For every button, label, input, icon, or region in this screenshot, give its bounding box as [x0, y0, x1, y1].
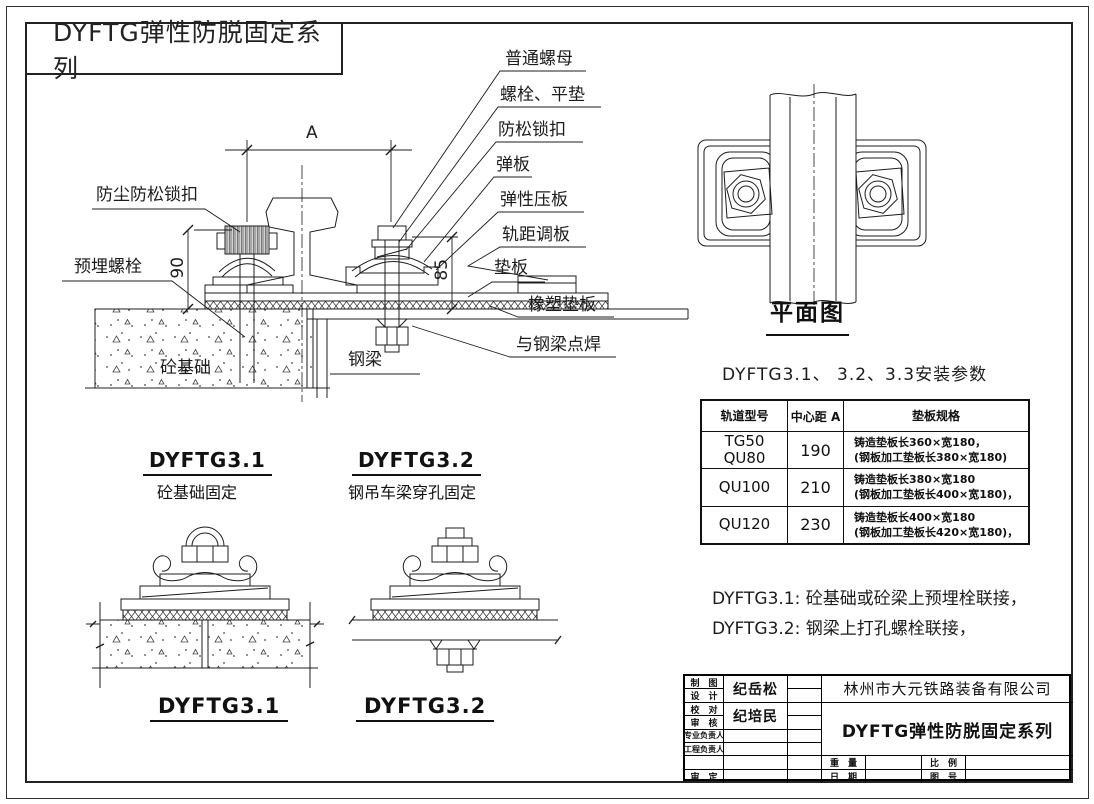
variant-left-footer: DYFTG3.1 [150, 694, 288, 722]
drawing-sheet: DYFTG弹性防脱固定系列 普通螺母 螺栓、平垫 防松锁扣 弹板 弹性压板 轨距… [0, 0, 1094, 804]
tb-date-value [866, 770, 922, 783]
variant-right-title: DYFTG3.2 [352, 448, 481, 476]
label-embed-bolt: 预埋螺栓 [74, 258, 142, 278]
label-dust-lock: 防尘防松锁扣 [96, 186, 198, 206]
plan-view-linework [698, 84, 926, 318]
rail-model: QU100 [719, 479, 770, 496]
tb-drawing-title: DYFTG弹性防脱固定系列 [822, 703, 1073, 757]
label-steel-beam: 钢梁 [348, 351, 382, 371]
tb-sign-cell [788, 703, 822, 716]
note-dyftg31: DYFTG3.1: 砼基础或砼梁上预埋栓联接， [712, 584, 1027, 609]
variant-right-linework [349, 528, 561, 672]
center-distance: 190 [787, 432, 843, 468]
callout-gauge-plate: 轨距调板 [502, 226, 570, 246]
dim-label-A: A [306, 124, 318, 144]
rail-model: QU120 [719, 516, 770, 533]
table-row: QU100 210 铸造垫板长380×宽180 (钢板加工垫板长400×宽180… [702, 468, 1028, 505]
variant-left-linework [86, 527, 324, 688]
dim-label-85: 85 [433, 259, 453, 281]
callout-ordinary-nut: 普通螺母 [505, 50, 573, 70]
title-block: 制 图 设 计 校 对 审 核 专业负责人 工程负责人 审 定 纪岳松 纪培民 … [683, 674, 1071, 781]
tb-sign-cell [788, 689, 822, 702]
plate-spec-line1: 铸造垫板长400×宽180 [854, 510, 975, 525]
label-concrete: 砼基础 [160, 359, 211, 379]
plate-spec-line2: (钢板加工垫板长380×宽180) [854, 450, 1007, 465]
callout-spot-weld: 与钢梁点焊 [516, 336, 601, 356]
tb-number-label: 图 号 [922, 770, 966, 783]
tb-sign-cell [788, 716, 822, 729]
callout-rubber-pad: 橡塑垫板 [528, 296, 596, 316]
tb-sign-cell [788, 743, 822, 756]
variant-right-subtitle: 钢吊车梁穿孔固定 [348, 479, 476, 503]
plate-spec-line2: (钢板加工垫板长420×宽180)， [854, 525, 1018, 540]
tb-label-proofread: 校 对 [685, 703, 724, 716]
params-table: 轨道型号 中心距 A 垫板规格 TG50 QU80 190 铸造垫板长360×宽… [700, 399, 1030, 545]
variant-left-subtitle: 砼基础固定 [157, 479, 237, 503]
tb-designer-name: 纪岳松 [724, 676, 788, 703]
table-row: TG50 QU80 190 铸造垫板长360×宽180， (钢板加工垫板长380… [702, 431, 1028, 468]
center-distance: 230 [787, 507, 843, 543]
dim-label-90: 90 [169, 257, 189, 279]
note-dyftg32: DYFTG3.2: 钢梁上打孔螺栓联接， [712, 614, 976, 639]
callout-bolt-washer: 螺栓、平垫 [500, 86, 585, 106]
tb-label-designer: 设 计 [685, 689, 724, 702]
tb-label-blank [685, 756, 724, 769]
center-distance: 210 [787, 469, 843, 505]
tb-label-approver: 审 定 [685, 770, 724, 783]
col-header-rail-model: 轨道型号 [702, 401, 787, 431]
plate-spec-line1: 铸造垫板长360×宽180， [854, 435, 986, 450]
variant-right-footer: DYFTG3.2 [356, 694, 494, 722]
tb-sign-cell [788, 770, 822, 783]
tb-checker-name: 纪培民 [724, 703, 788, 730]
tb-label-discipline-lead: 专业负责人 [685, 730, 724, 743]
params-table-title: DYFTG3.1、 3.2、3.3安装参数 [722, 366, 987, 386]
table-row: QU120 230 铸造垫板长400×宽180 (钢板加工垫板长420×宽180… [702, 506, 1028, 543]
series-title-box: DYFTG弹性防脱固定系列 [25, 22, 343, 75]
callout-elastic-clamp: 弹性压板 [500, 191, 568, 211]
plate-spec-line2: (钢板加工垫板长400×宽180)， [854, 487, 1018, 502]
rail-model: TG50 [725, 433, 765, 450]
tb-sign-cell [788, 676, 822, 689]
tb-weight-value [866, 756, 922, 769]
tb-name-empty [724, 756, 788, 769]
tb-name-empty [724, 730, 788, 743]
tb-sign-cell [788, 730, 822, 743]
callout-antiloosen-lock: 防松锁扣 [498, 121, 566, 141]
params-header-row: 轨道型号 中心距 A 垫板规格 [702, 401, 1028, 431]
plate-spec-line1: 铸造垫板长380×宽180 [854, 472, 975, 487]
plan-view-title: 平面图 [766, 293, 849, 336]
tb-label-drafter: 制 图 [685, 676, 724, 689]
tb-name-empty [724, 743, 788, 756]
tb-date-label: 日 期 [822, 770, 866, 783]
tb-scale-label: 比 例 [922, 756, 966, 769]
tb-scale-value [966, 756, 1073, 769]
tb-sign-cell [788, 756, 822, 769]
callout-base-plate: 垫板 [494, 259, 528, 279]
col-header-plate-spec: 垫板规格 [843, 401, 1028, 431]
tb-number-value [966, 770, 1073, 783]
tb-name-empty [724, 770, 788, 783]
col-header-center-dist: 中心距 A [787, 401, 843, 431]
tb-weight-label: 重 量 [822, 756, 866, 769]
rail-model-2: QU80 [724, 450, 766, 467]
tb-label-project-lead: 工程负责人 [685, 743, 724, 756]
callout-spring-plate: 弹板 [496, 156, 530, 176]
variant-left-title: DYFTG3.1 [143, 448, 272, 476]
series-title: DYFTG弹性防脱固定系列 [53, 13, 341, 85]
tb-company: 林州市大元铁路装备有限公司 [822, 676, 1073, 703]
tb-label-reviewer: 审 核 [685, 716, 724, 729]
